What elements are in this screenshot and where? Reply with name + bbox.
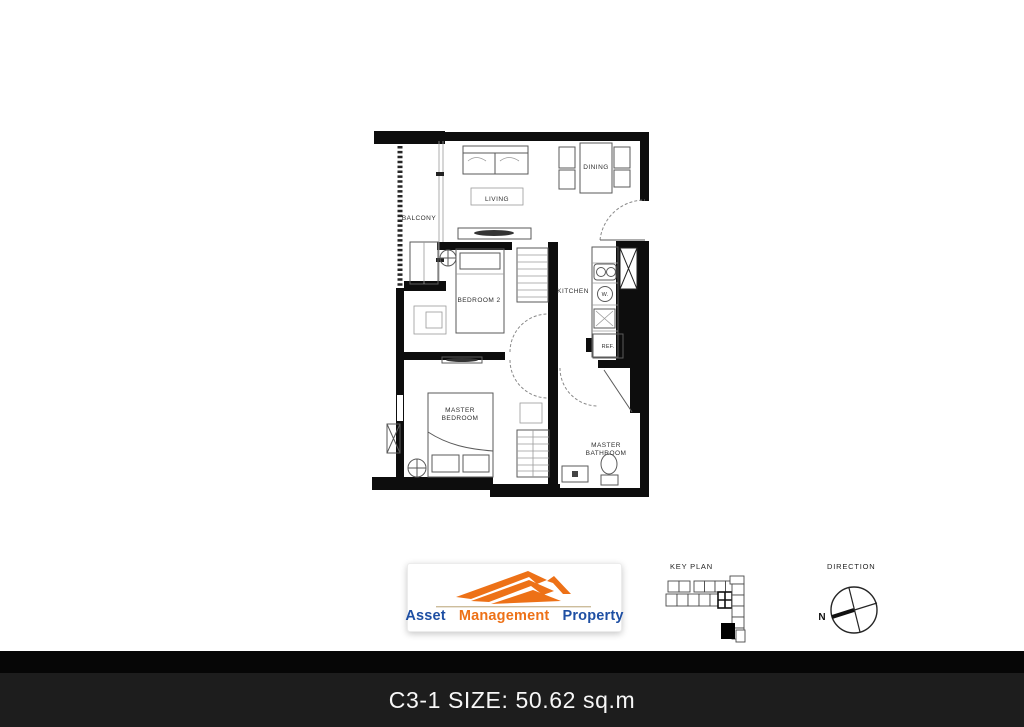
direction-title: DIRECTION — [827, 562, 875, 571]
agency-logo-card: Asset Management Property — [407, 563, 622, 632]
north-label: N — [818, 612, 825, 623]
logo-word-asset: Asset — [405, 608, 446, 624]
dining-label: DINING — [583, 164, 608, 171]
balcony-area: BALCONY — [387, 141, 444, 453]
bedroom2-door — [510, 314, 548, 352]
master-door — [510, 360, 548, 398]
direction-compass: DIRECTION N — [818, 562, 877, 633]
master-bathroom-area: MASTER BATHROOM — [560, 368, 632, 485]
shower-glass — [604, 370, 632, 412]
unit-size-bar: C3-1 SIZE: 50.62 sq.m — [0, 673, 1024, 727]
master-bedroom-area: MASTER BEDROOM — [408, 357, 549, 477]
mountain-logo-icon — [408, 564, 621, 608]
north-needle — [832, 610, 854, 617]
washer-label: W. — [602, 292, 609, 298]
master-bed — [428, 393, 493, 477]
key-plan: KEY PLAN — [666, 562, 745, 642]
dining-chair — [614, 147, 630, 168]
entrance-door — [600, 200, 645, 240]
master-bedroom-label-1: MASTER — [445, 407, 475, 414]
pillow — [460, 253, 500, 269]
pillow — [463, 455, 489, 472]
wardrobe2 — [517, 248, 548, 302]
master-bathroom-label-1: MASTER — [591, 442, 621, 449]
floor-plan-drawing: BALCONY LIVING DINING — [0, 0, 1024, 651]
bed2 — [456, 249, 504, 333]
living-label: LIVING — [485, 196, 509, 203]
fridge-label: REF. — [602, 344, 615, 350]
dining-chair — [614, 170, 630, 187]
bedroom2-area: BEDROOM 2 — [414, 248, 548, 352]
balcony-label: BALCONY — [402, 215, 436, 222]
desk-chair — [426, 312, 442, 328]
master-bedroom-label-2: BEDROOM — [442, 415, 479, 422]
kitchen-label: KITCHEN — [557, 288, 589, 295]
unit-size-label: C3-1 SIZE: 50.62 sq.m — [389, 687, 636, 714]
logo-word-management: Management — [459, 608, 550, 624]
bedroom2-label: BEDROOM 2 — [457, 297, 500, 304]
dining-chair — [559, 147, 575, 168]
pillow — [432, 455, 459, 472]
desk — [414, 306, 446, 334]
dining-chair — [559, 170, 575, 189]
logo-word-property: Property — [562, 608, 623, 624]
key-plan-title: KEY PLAN — [670, 562, 713, 571]
logo-wordmark: Asset Management Property — [408, 608, 621, 624]
tv — [474, 230, 514, 236]
dresser — [520, 403, 542, 423]
living-area: LIVING — [458, 146, 531, 239]
floor-plan-page: BALCONY LIVING DINING — [0, 0, 1024, 727]
bathroom-door — [560, 368, 598, 406]
dining-area: DINING — [559, 143, 630, 193]
master-bathroom-label-2: BATHROOM — [586, 450, 627, 457]
black-divider-strip — [0, 651, 1024, 673]
key-plan-highlighted-unit — [721, 623, 735, 639]
toilet — [601, 454, 617, 474]
